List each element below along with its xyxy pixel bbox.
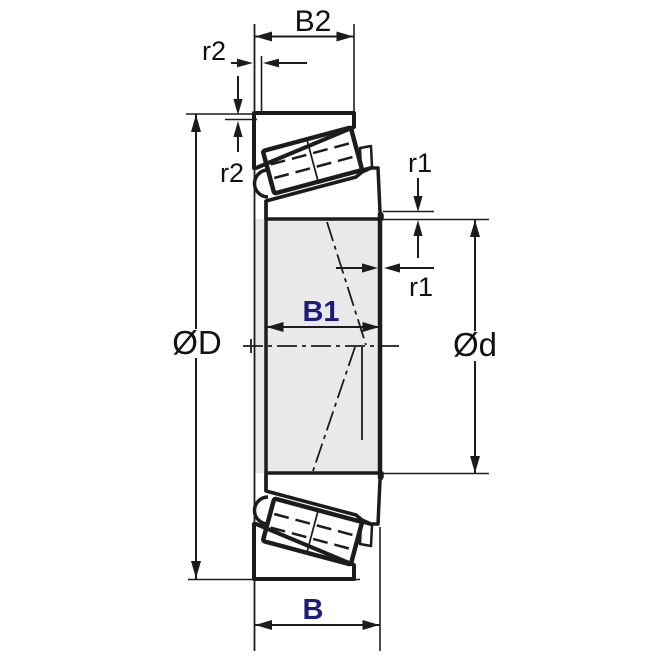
bearing-dimension-diagram: B2 r2 r2 ØD Ød [0,0,670,670]
label-r2-vertical: r2 [220,158,244,188]
label-r1-horizontal: r1 [409,272,433,302]
label-outer-diameter: ØD [172,324,222,361]
label-bore-diameter: Ød [453,326,497,363]
label-r1-vertical: r1 [408,148,432,178]
label-b2: B2 [295,5,332,38]
label-r2-horizontal: r2 [202,36,226,66]
diagram-canvas: B2 r2 r2 ØD Ød [0,0,670,670]
label-b1: B1 [302,296,339,328]
label-total-width: B [303,594,324,626]
